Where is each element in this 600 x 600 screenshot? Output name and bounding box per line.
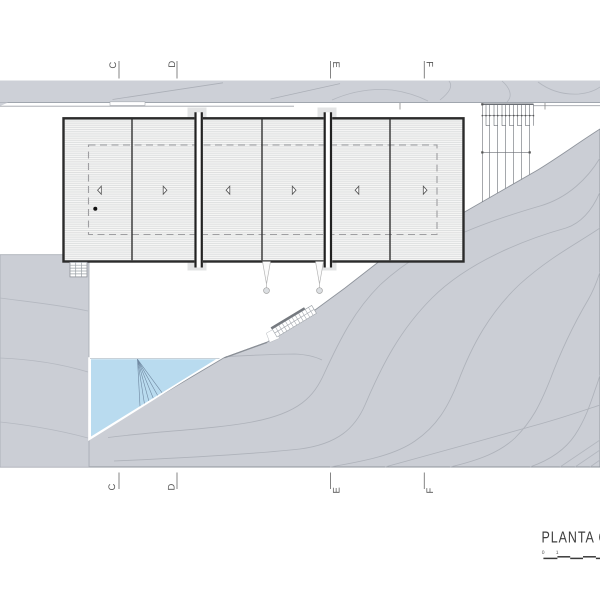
svg-text:0: 0 — [542, 550, 545, 556]
svg-text:F: F — [424, 61, 435, 67]
svg-text:E: E — [330, 62, 341, 68]
svg-text:PLANTA C: PLANTA C — [542, 529, 600, 546]
svg-text:1: 1 — [556, 550, 559, 556]
svg-text:C: C — [107, 484, 118, 491]
svg-text:D: D — [167, 61, 178, 68]
svg-text:E: E — [332, 487, 343, 493]
svg-text:D: D — [166, 484, 177, 491]
svg-text:F: F — [425, 488, 436, 494]
svg-text:C: C — [108, 62, 119, 69]
